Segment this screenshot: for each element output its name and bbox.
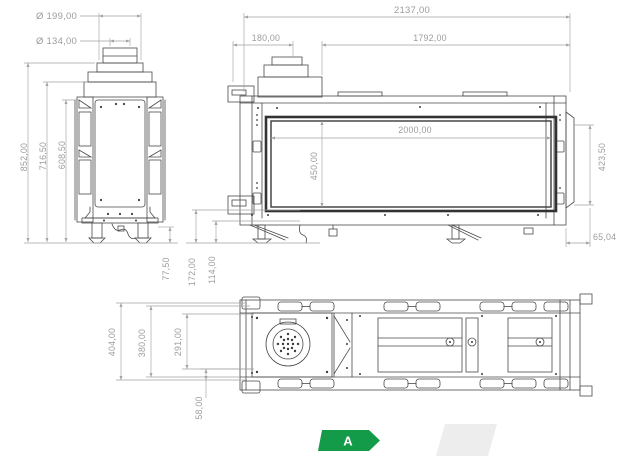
dimension-side-offset: 65,04 (566, 208, 616, 247)
dimension-flue-section-width: 180,00 (233, 33, 293, 82)
dim-label-inner-depth: 291,00 (173, 328, 183, 356)
front-view (228, 57, 574, 243)
dimension-opening-width: 2000,00 (271, 125, 551, 138)
dim-label-side-height: 423,50 (597, 143, 607, 171)
dim-label-body-width: 1792,00 (413, 33, 447, 43)
front-flue-pipe (272, 57, 302, 65)
side-view (75, 48, 165, 243)
dimension-body-depth: 380,00 (137, 306, 250, 377)
plan-view (240, 294, 592, 396)
side-inner-panel (95, 100, 145, 207)
dim-label-flue-outer: Ø 199,00 (36, 11, 77, 22)
dim-label-frame-height: 608,50 (57, 141, 67, 169)
dimension-inner-depth: 291,00 (173, 314, 254, 369)
dimension-leg-height: 77,50 (158, 227, 174, 281)
front-body (240, 96, 566, 225)
dim-label-side-offset: 65,04 (593, 232, 616, 242)
dim-label-body-height: 716,50 (38, 142, 48, 170)
dimension-frame-height: 608,50 (57, 100, 79, 242)
dimension-bottom-offset: 58,00 (194, 369, 254, 420)
technical-drawing-page: Ø 199,00 Ø 134,00 852,00 716,50 608,50 (0, 0, 624, 460)
dimensions: Ø 199,00 Ø 134,00 852,00 716,50 608,50 (19, 5, 616, 420)
dim-label-total-depth: 404,00 (107, 328, 117, 356)
dimension-flue-inner: Ø 134,00 (36, 36, 130, 47)
dim-label-total-height: 852,00 (19, 143, 29, 171)
dim-label-leg-height: 77,50 (161, 257, 171, 280)
dim-label-bottom-offset: 58,00 (194, 396, 204, 419)
energy-class-label: A (318, 430, 380, 451)
flue-pipe (103, 48, 137, 63)
dim-label-body-depth: 380,00 (137, 329, 147, 357)
energy-class-letter: A (343, 434, 353, 449)
dim-label-opening-height: 450,00 (309, 152, 319, 180)
dim-label-flue-inner: Ø 134,00 (36, 36, 77, 47)
dimension-burner-height: 114,00 (207, 221, 300, 284)
dim-label-connection-height: 172,00 (187, 258, 197, 286)
dim-label-total-width: 2137,00 (394, 5, 430, 16)
technical-drawing: Ø 199,00 Ø 134,00 852,00 716,50 608,50 (0, 0, 624, 460)
dim-label-flue-section-width: 180,00 (252, 33, 280, 43)
dim-label-opening-width: 2000,00 (398, 125, 432, 135)
dimension-body-width: 1792,00 (322, 33, 570, 75)
dim-label-burner-height: 114,00 (207, 256, 217, 284)
dimension-side-height: 423,50 (574, 125, 607, 205)
watermark-shape (436, 424, 497, 456)
dimension-opening-height: 450,00 (309, 121, 322, 207)
plan-body (240, 300, 580, 390)
